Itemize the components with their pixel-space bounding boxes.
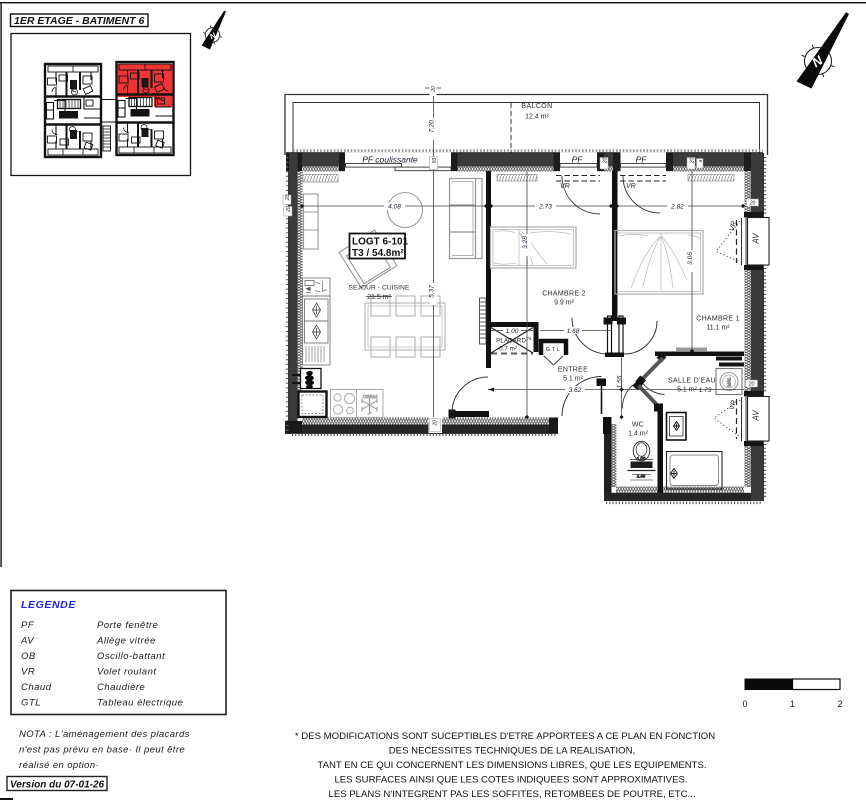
svg-text:Tableau électrique: Tableau électrique <box>97 698 183 709</box>
svg-text:0.7 m²: 0.7 m² <box>499 346 517 353</box>
svg-text:Chaudière: Chaudière <box>97 682 145 693</box>
svg-text:VR: VR <box>21 667 35 678</box>
svg-text:9.9 m²: 9.9 m² <box>554 300 575 307</box>
svg-text:2: 2 <box>837 699 842 709</box>
svg-text:20: 20 <box>690 158 696 165</box>
svg-text:Oscillo-battant: Oscillo-battant <box>97 651 165 662</box>
svg-text:VR: VR <box>560 183 570 190</box>
svg-text:LES SURFACES AINSI QUE LES COT: LES SURFACES AINSI QUE LES COTES INDIQUE… <box>334 775 687 786</box>
svg-text:7.20: 7.20 <box>429 120 436 133</box>
svg-text:LES PLANS N'INTEGRENT PAS LES: LES PLANS N'INTEGRENT PAS LES SOFFITES, … <box>328 789 695 800</box>
svg-text:AV: AV <box>20 636 35 647</box>
svg-text:réalisé en option·: réalisé en option· <box>19 760 99 771</box>
svg-text:2.82: 2.82 <box>670 204 684 211</box>
svg-text:CHAMBRE 2: CHAMBRE 2 <box>542 291 586 298</box>
svg-text:SALLE D'EAU: SALLE D'EAU <box>668 378 716 385</box>
svg-text:* DES MODIFICATIONS SONT SUCEP: * DES MODIFICATIONS SONT SUCEPTIBLES D'E… <box>295 731 715 742</box>
svg-text:Porte fenêtre: Porte fenêtre <box>97 620 158 631</box>
svg-text:PF: PF <box>21 620 35 631</box>
svg-text:1.46: 1.46 <box>637 474 646 479</box>
svg-text:5.37: 5.37 <box>429 285 436 298</box>
svg-text:Chaud: Chaud <box>21 682 52 693</box>
svg-text:LOGT 6-101: LOGT 6-101 <box>352 237 409 248</box>
svg-text:4.08: 4.08 <box>388 204 401 211</box>
svg-text:1.68: 1.68 <box>567 328 580 335</box>
svg-text:AV: AV <box>752 410 761 422</box>
svg-text:21.5 m²: 21.5 m² <box>367 294 391 301</box>
svg-text:1ER ETAGE - BATIMENT 6: 1ER ETAGE - BATIMENT 6 <box>14 15 144 27</box>
svg-text:PLACARD: PLACARD <box>496 338 526 345</box>
svg-text:20: 20 <box>748 382 755 388</box>
svg-text:WC: WC <box>632 422 644 429</box>
svg-text:AV: AV <box>752 233 761 245</box>
svg-text:LEGENDE: LEGENDE <box>21 599 76 611</box>
svg-text:20: 20 <box>285 195 291 202</box>
svg-text:MAL: MAL <box>727 377 732 387</box>
svg-text:ENTREE: ENTREE <box>558 367 588 374</box>
svg-text:T3 / 54.8m²: T3 / 54.8m² <box>352 248 404 259</box>
svg-text:12.4 m²: 12.4 m² <box>525 114 549 121</box>
svg-text:CHAMBRE 1: CHAMBRE 1 <box>696 316 740 323</box>
svg-text:5.1 m²: 5.1 m² <box>677 387 698 394</box>
svg-text:GTL: GTL <box>21 698 41 709</box>
svg-text:PF: PF <box>636 155 648 165</box>
svg-text:GTL: GTL <box>546 347 562 353</box>
svg-text:Volet roulant: Volet roulant <box>97 667 157 678</box>
svg-text:1.55: 1.55 <box>617 375 624 388</box>
svg-text:BALCON: BALCON <box>521 103 552 110</box>
svg-text:SEJOUR - CUISINE: SEJOUR - CUISINE <box>349 285 410 292</box>
svg-text:20: 20 <box>749 201 756 207</box>
svg-text:PF coulissante: PF coulissante <box>362 155 418 165</box>
svg-text:2.73: 2.73 <box>538 204 552 211</box>
svg-text:Version du 07-01-26: Version du 07-01-26 <box>10 780 105 791</box>
svg-text:1.00: 1.00 <box>506 328 519 335</box>
svg-text:n'est pas prévu en base· Il pe: n'est pas prévu en base· Il peut être <box>19 745 185 756</box>
svg-text:NOTA : L'aménagement des placa: NOTA : L'aménagement des placards <box>19 729 190 740</box>
svg-text:TANT EN CE QUI CONCERNENT LES: TANT EN CE QUI CONCERNENT LES DIMENSIONS… <box>317 760 706 771</box>
svg-text:11.1 m²: 11.1 m² <box>706 325 730 332</box>
svg-text:FRIGO: FRIGO <box>362 394 377 399</box>
svg-text:1.4 m²: 1.4 m² <box>628 431 649 438</box>
svg-text:DES NECESSITES TECHNIQUES DE L: DES NECESSITES TECHNIQUES DE LA REALISAT… <box>389 746 635 757</box>
svg-text:20: 20 <box>603 158 609 165</box>
svg-text:3.62: 3.62 <box>569 387 582 394</box>
svg-text:1.85: 1.85 <box>605 439 611 451</box>
svg-text:1.73: 1.73 <box>699 387 712 394</box>
svg-text:PF: PF <box>572 155 584 165</box>
svg-text:OB: OB <box>21 651 36 662</box>
svg-text:3.06: 3.06 <box>687 252 694 265</box>
svg-text:0: 0 <box>742 699 747 709</box>
svg-text:1.00: 1.00 <box>637 456 646 461</box>
svg-text:Allège vitrée: Allège vitrée <box>96 636 156 647</box>
svg-text:20: 20 <box>286 206 292 213</box>
svg-text:VR: VR <box>626 183 636 190</box>
svg-text:93: 93 <box>432 158 438 164</box>
svg-text:3.28: 3.28 <box>522 236 529 249</box>
svg-text:20: 20 <box>433 420 439 427</box>
svg-text:5.1 m²: 5.1 m² <box>563 376 584 383</box>
svg-text:1: 1 <box>790 699 795 709</box>
svg-text:20: 20 <box>431 86 437 93</box>
